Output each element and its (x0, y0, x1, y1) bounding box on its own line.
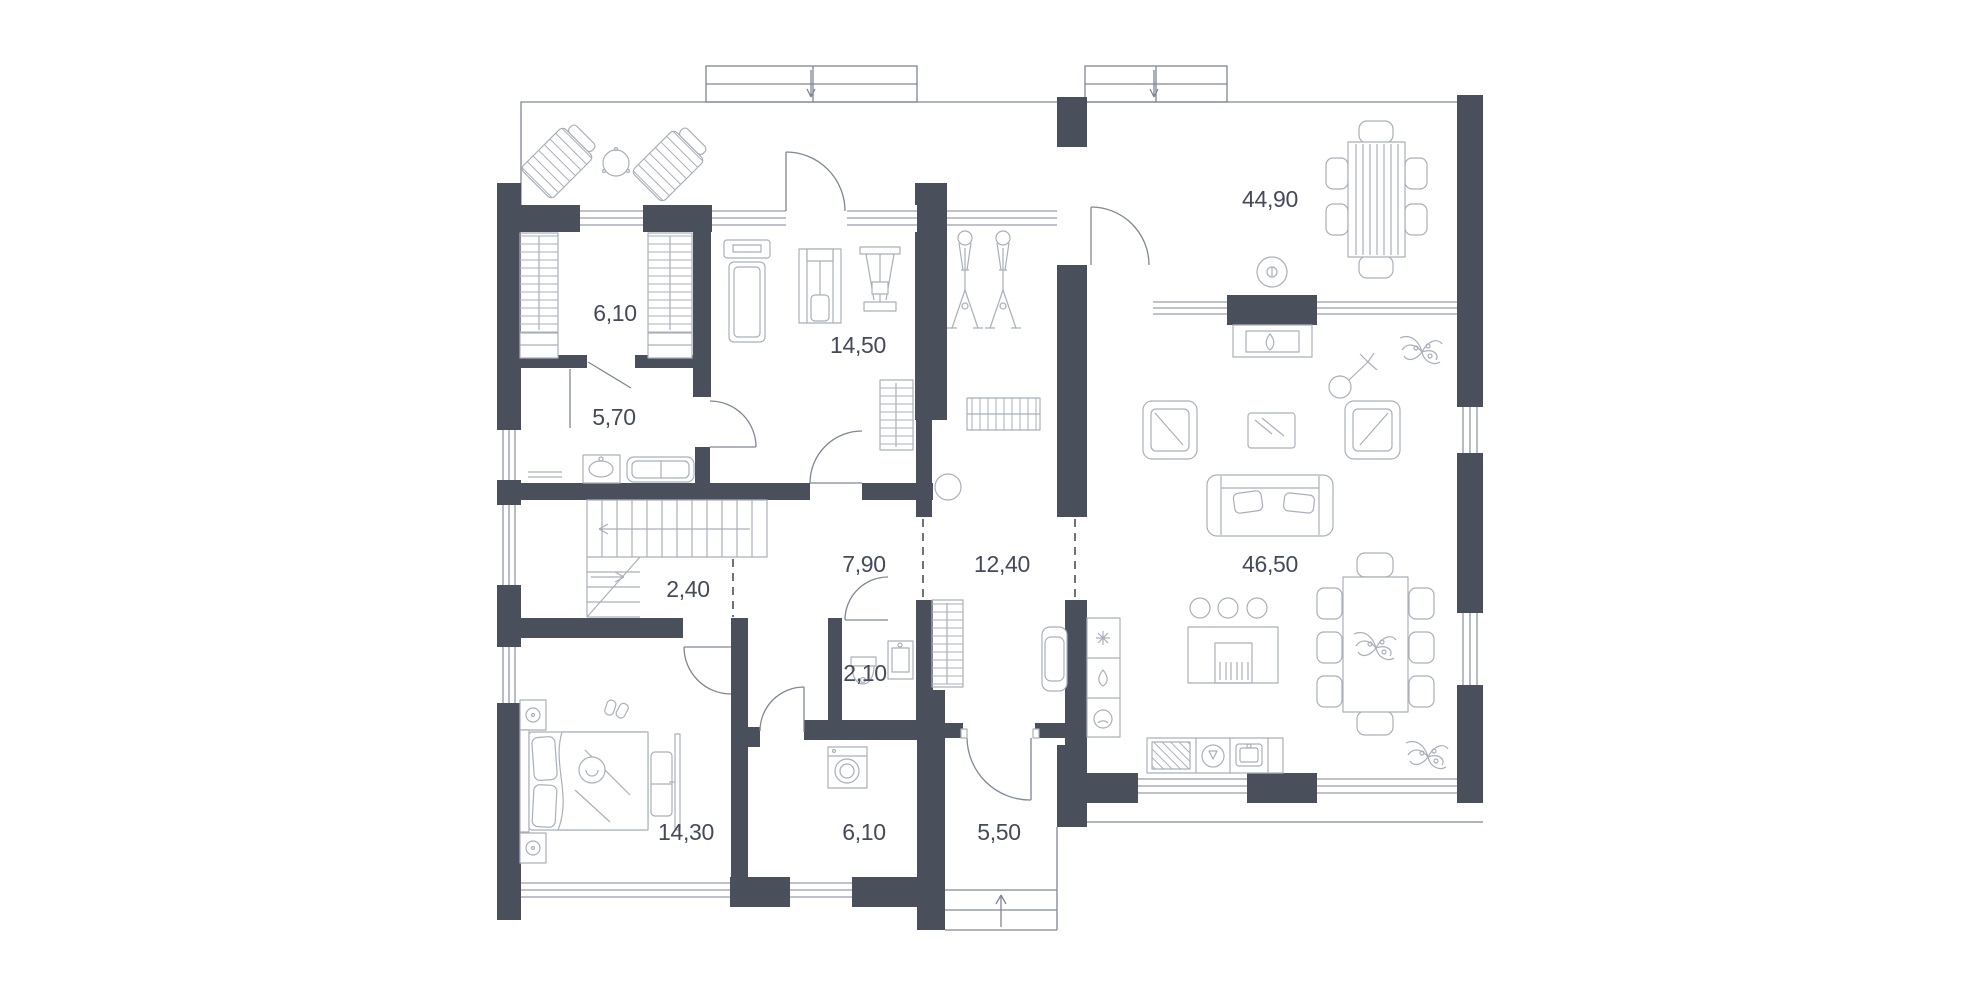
lounge-chair (520, 119, 601, 200)
door-entry (961, 729, 1039, 800)
window (1317, 773, 1457, 803)
dining-chair (1326, 204, 1348, 235)
dining-chair (1317, 676, 1342, 707)
corridor-furniture (932, 398, 1067, 691)
pouf (935, 474, 961, 500)
kitchen-tall-cabinets (1087, 618, 1120, 737)
wardrobe (520, 233, 558, 358)
sofa (1207, 475, 1333, 536)
treadmill (724, 240, 770, 342)
weight-machine (799, 249, 841, 323)
towel-rail (528, 472, 562, 477)
round-side-table (1257, 257, 1287, 287)
room-label-bedroom: 14,30 (658, 819, 714, 845)
lat-pulldown-machine (860, 247, 900, 311)
bar-stool (1218, 598, 1238, 618)
hall-bench (1042, 627, 1067, 691)
room-label-bathroom: 5,70 (592, 404, 636, 430)
door-wc (845, 577, 888, 620)
kitchen-island (1188, 598, 1278, 683)
window (712, 205, 786, 232)
window (497, 505, 521, 585)
dining-chair (1409, 588, 1434, 619)
window (790, 877, 852, 907)
corridor-wardrobe (967, 398, 1040, 430)
stair-up-arrow-icon (599, 524, 750, 534)
floor-plan-page: 6,10 5,70 14,50 44,90 2,40 7,90 12,40 46… (0, 0, 1980, 990)
terrace-furniture (520, 119, 712, 203)
terrace-table (603, 148, 630, 177)
exercise-bike (947, 231, 983, 328)
room-label-corridor: 12,40 (974, 551, 1030, 577)
large-dining-table (1343, 577, 1408, 712)
dining-chair (1317, 632, 1342, 663)
dressing-room-furniture (520, 233, 692, 358)
plant (1406, 742, 1448, 769)
wc-sink (888, 641, 913, 679)
bar-stool (1190, 598, 1210, 618)
dining-chair (1357, 711, 1393, 735)
door-bathroom (710, 401, 756, 447)
exit-steps (945, 890, 1057, 930)
bed (520, 730, 648, 832)
plant (1400, 337, 1442, 364)
lounge-chair (631, 122, 712, 203)
room-label-dressing-room: 6,10 (593, 300, 637, 326)
dining-table (1348, 142, 1405, 257)
bedroom-furniture (520, 699, 680, 863)
hall-wardrobe (932, 600, 963, 687)
dining-chair (1359, 256, 1393, 278)
entrance-steps-left (706, 66, 917, 102)
fridge-snowflake-icon (1096, 631, 1110, 645)
bathtub (627, 457, 694, 482)
dining-chair (1317, 588, 1342, 619)
fireplace (1233, 325, 1312, 357)
room-label-gym: 14,50 (830, 332, 886, 358)
armchair (1345, 401, 1400, 459)
dining-chair (1409, 676, 1434, 707)
room-label-hallway: 7,90 (842, 551, 886, 577)
coffee-table (1248, 413, 1295, 448)
room-label-entry: 5,50 (977, 819, 1021, 845)
kitchen-counter (1147, 738, 1283, 773)
dining-chair (1409, 632, 1434, 663)
kitchen-sink (1236, 744, 1262, 766)
dining-chair (1405, 204, 1427, 235)
living-room-furniture (1143, 401, 1448, 769)
window (497, 647, 521, 703)
step-arrow-up-icon (996, 895, 1006, 927)
door-gym (810, 431, 862, 483)
dining-chair (1359, 121, 1393, 143)
entrance-steps-right (1085, 66, 1227, 102)
door-dining-room (1091, 207, 1149, 265)
room-label-living-room: 46,50 (1242, 551, 1298, 577)
armchair (1143, 401, 1197, 459)
room-label-wc: 2,10 (843, 660, 887, 686)
bar-stool (1247, 598, 1267, 618)
bathroom-sink (583, 455, 620, 483)
door-dressing-bathroom (588, 362, 631, 388)
window (497, 430, 521, 480)
dining-chair (1357, 553, 1393, 577)
floor-plan: 6,10 5,70 14,50 44,90 2,40 7,90 12,40 46… (0, 0, 1980, 990)
room-label-laundry: 6,10 (842, 819, 886, 845)
exercise-bike (985, 231, 1021, 328)
gym-wardrobe (880, 380, 913, 450)
half-wall (1153, 302, 1227, 314)
window (521, 877, 730, 907)
half-wall (1317, 302, 1457, 314)
window (1457, 407, 1483, 453)
window (1457, 613, 1483, 685)
bedroom-bench (651, 752, 672, 816)
window (580, 205, 643, 232)
nightstand (520, 833, 546, 863)
slippers (604, 699, 630, 719)
room-label-stair-hall: 2,40 (666, 576, 710, 602)
door-terrace-gym (786, 152, 845, 211)
laundry-furniture (828, 747, 867, 788)
dining-chair (1405, 158, 1427, 189)
window (847, 205, 917, 232)
nightstand (520, 700, 546, 730)
hob (1152, 742, 1190, 769)
door-laundry (760, 687, 804, 732)
dining-chair (1326, 158, 1348, 189)
washing-machine (828, 747, 867, 788)
floor-lamp (1329, 353, 1377, 398)
wardrobe (648, 233, 692, 358)
room-label-dining-room: 44,90 (1242, 186, 1298, 212)
window (1138, 773, 1247, 803)
window (947, 205, 1057, 232)
door-bedroom (684, 647, 731, 694)
